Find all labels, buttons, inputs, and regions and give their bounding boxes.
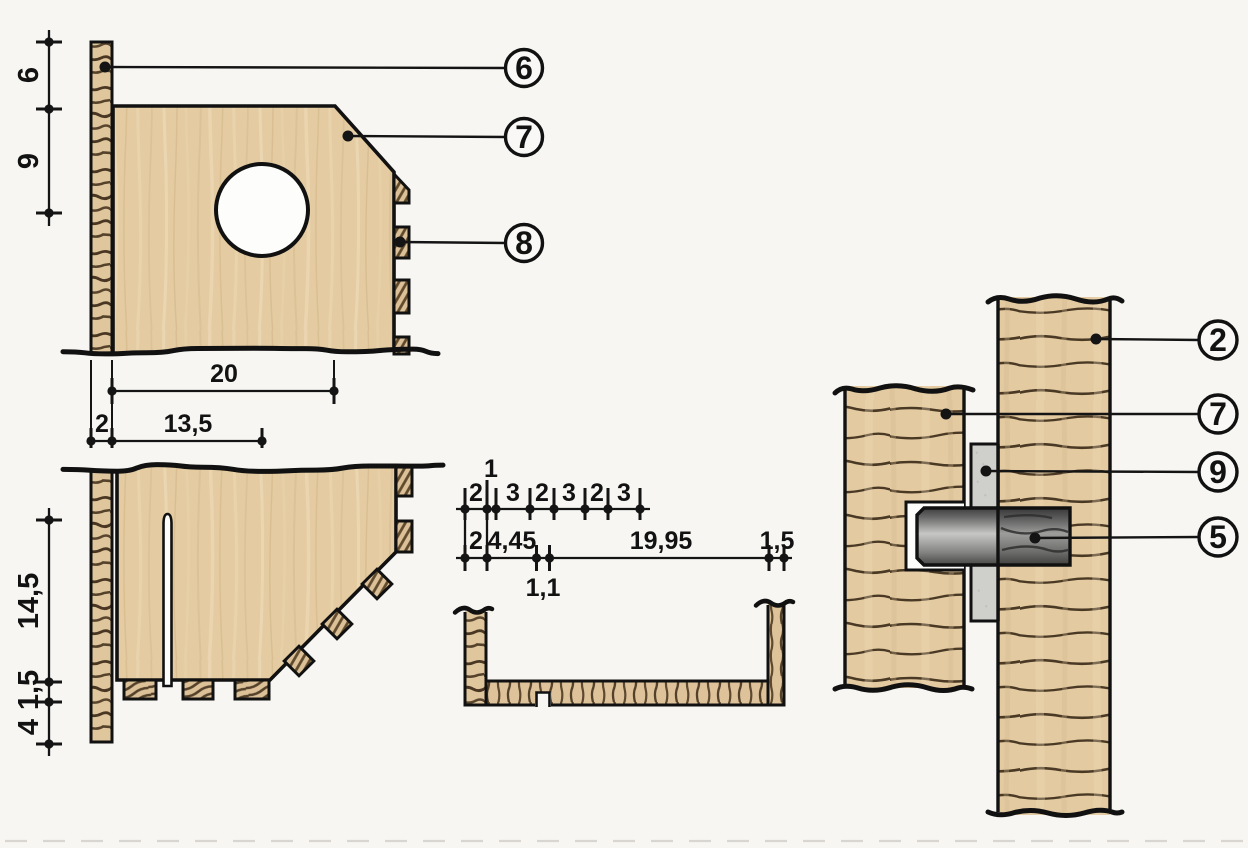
svg-text:8: 8: [515, 225, 533, 261]
svg-text:4,45: 4,45: [488, 527, 537, 555]
svg-text:1,1: 1,1: [526, 574, 561, 602]
svg-text:5: 5: [1209, 519, 1227, 555]
svg-text:14,5: 14,5: [13, 573, 45, 629]
svg-text:9: 9: [1209, 454, 1227, 490]
svg-text:2: 2: [469, 527, 483, 555]
svg-text:3: 3: [617, 479, 631, 507]
svg-text:7: 7: [515, 119, 533, 155]
svg-text:6: 6: [515, 50, 533, 86]
svg-text:20: 20: [210, 360, 238, 388]
svg-text:9: 9: [13, 153, 45, 169]
svg-text:6: 6: [13, 67, 45, 83]
svg-text:1: 1: [484, 455, 498, 483]
svg-text:13,5: 13,5: [164, 410, 213, 438]
svg-text:1,5: 1,5: [760, 527, 795, 555]
svg-text:2: 2: [1209, 322, 1227, 358]
svg-text:2: 2: [95, 410, 109, 438]
svg-text:19,95: 19,95: [630, 527, 693, 555]
svg-text:4: 4: [13, 719, 45, 735]
svg-text:3: 3: [506, 479, 520, 507]
svg-text:2: 2: [535, 479, 549, 507]
svg-text:2: 2: [469, 479, 483, 507]
svg-text:3: 3: [562, 479, 576, 507]
svg-text:2: 2: [590, 479, 604, 507]
svg-text:1,5: 1,5: [13, 670, 45, 710]
svg-text:7: 7: [1209, 396, 1227, 432]
